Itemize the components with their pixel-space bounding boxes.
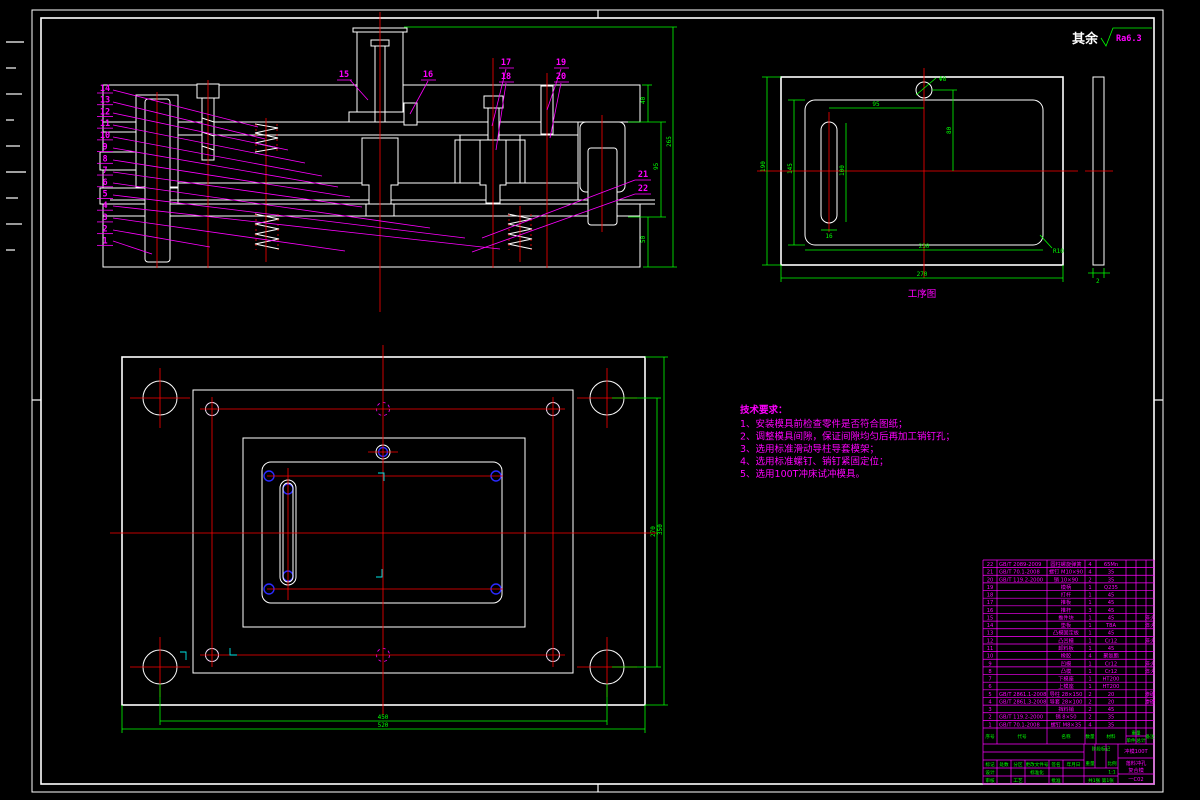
bom-mat: 45 [1108, 615, 1115, 621]
process-view-title: 工序图 [908, 288, 937, 300]
bom-note: 淬火 [1145, 667, 1155, 675]
bom-name: 橡胶 [1061, 652, 1071, 660]
bom-no: 12 [987, 638, 994, 644]
bom-qty: 1 [1088, 600, 1091, 606]
dim-value: 95 [653, 162, 660, 170]
bom-no: 4 [988, 699, 992, 705]
bom-mat: 20 [1108, 692, 1115, 698]
bom-no: 21 [987, 570, 994, 576]
title-block: 标记 处数 分区 更改文件号 签名 年月日 设计 标准化 审核 工艺 批准 阶段… [983, 744, 1154, 784]
bom-mat: Q235 [1104, 585, 1118, 591]
balloon-number: 14 [100, 84, 110, 94]
tb-zone: 分区 [1013, 761, 1023, 768]
bom-name: 圆柱螺旋弹簧 [1050, 560, 1081, 568]
bom-qty: 4 [1088, 654, 1092, 660]
balloon-number: 7 [102, 166, 107, 176]
bom-mat: 35 [1108, 715, 1115, 721]
roughness-prefix: 其余 [1072, 31, 1099, 47]
section-view: 14 13 12 11 10 9 8 7 [97, 12, 677, 312]
bom-no: 14 [987, 623, 994, 629]
guide-post-holes [143, 381, 624, 684]
balloon-number: 20 [556, 72, 566, 82]
table-row: 21 GB/T 70.1-2008 螺钉 M10×90 4 35 [983, 568, 1154, 576]
balloon-number: 10 [100, 131, 110, 141]
dim-value: 520 [378, 722, 389, 729]
bom-mat: 45 [1108, 593, 1115, 599]
dim-value: 230 [919, 243, 930, 250]
table-row: 17 推板 1 45 [983, 598, 1154, 606]
dim-value: 100 [839, 165, 846, 176]
bom-name: 导套 28×100 [1050, 697, 1083, 705]
title-block-names: 冲模100T 落料冲孔 复合模 一C02 [1124, 747, 1148, 783]
screw-head [484, 96, 503, 108]
bom-mat: 聚氨酯 [1103, 652, 1119, 660]
bom-qty: 4 [1088, 562, 1092, 568]
tb-count: 处数 [999, 761, 1009, 768]
bom-mat: 45 [1108, 631, 1115, 637]
table-row: 4 GB/T 2861.3-2008 导套 28×100 2 20 渗碳 [983, 697, 1156, 705]
plan-view: 270 350 450 520 [110, 345, 668, 733]
bom-name: 垫板 [1061, 621, 1072, 629]
tech-req-line: 3、选用标准滑动导柱导套模架； [740, 443, 879, 455]
bom-mat: 35 [1108, 570, 1115, 576]
bom-qty: 2 [1088, 692, 1091, 698]
bom-header-single: 单件 [1126, 737, 1136, 744]
bom-header-no: 序号 [985, 733, 995, 740]
bom-name: 推板 [1061, 598, 1072, 606]
bom-no: 19 [987, 585, 994, 591]
table-row: 5 GB/T 2861.1-2008 导柱 28×150 2 20 渗碳 [983, 690, 1156, 698]
tb-process: 工艺 [1013, 778, 1023, 784]
bom-no: 20 [987, 577, 994, 583]
bom-code: GB/T 119.2-2000 [999, 577, 1043, 583]
bom-no: 17 [987, 600, 994, 606]
table-row: 18 打杆 1 45 [983, 591, 1154, 599]
table-row: 3 挡料销 2 45 [983, 705, 1154, 713]
table-row: 11 卸料板 1 45 [983, 644, 1154, 652]
bom-qty: 2 [1088, 715, 1091, 721]
dim-value: 145 [787, 163, 794, 174]
bom-name: 上模座 [1058, 682, 1074, 690]
tb-drawing-number: 一C02 [1128, 777, 1143, 783]
bom-code: GB/T 2861.3-2008 [999, 699, 1046, 705]
bom-header-mat: 材料 [1106, 733, 1116, 740]
balloon-number: 6 [102, 178, 107, 188]
tb-part-name-line2: 复合模 [1128, 766, 1144, 774]
dim-value: 16 [825, 233, 833, 240]
dim-value: 2 [1096, 278, 1100, 285]
balloon-numbers-left: 14 13 12 11 10 9 8 7 [97, 84, 113, 246]
dim-value: 50 [640, 235, 647, 243]
table-row: 6 上模座 1 HT200 [983, 682, 1154, 690]
bom-mat: 35 [1108, 722, 1115, 728]
bom-qty: 1 [1088, 585, 1091, 591]
tech-req-line: 2、调整模具间隙，保证间隙均匀后再加工销钉孔； [740, 431, 955, 443]
technical-requirements: 技术要求： 1、安装模具前检查零件是否符合图纸； 2、调整模具间隙，保证间隙均匀… [740, 404, 955, 480]
bom-header-wt: 重量 [1131, 730, 1141, 737]
bom-mat: T8A [1105, 623, 1116, 629]
bom-no: 1 [988, 722, 991, 728]
balloon-number: 13 [100, 96, 110, 106]
tb-doc: 更改文件号 [1026, 761, 1049, 768]
balloon-number: 21 [638, 170, 648, 180]
bom-table: 22 GB/T 2089-2009 圆柱螺旋弹簧 4 65Mn 21 GB/T … [983, 560, 1156, 744]
bom-no: 6 [988, 684, 991, 690]
bom-header-qty: 数量 [1085, 733, 1095, 740]
table-row: 10 橡胶 4 聚氨酯 [983, 652, 1154, 660]
tb-scale: 比例 [1107, 760, 1117, 767]
dim-value: 190 [760, 161, 767, 172]
bom-name: 下模座 [1058, 675, 1074, 683]
bom-mat: 45 [1108, 600, 1115, 606]
bom-header-note: 备注 [1145, 733, 1155, 740]
bom-qty: 1 [1088, 669, 1091, 675]
bom-note: 淬火 [1145, 659, 1155, 667]
dim-value: 95 [872, 101, 880, 108]
bom-qty: 2 [1088, 699, 1091, 705]
bom-mat: 20 [1108, 699, 1115, 705]
bom-qty: 1 [1088, 631, 1091, 637]
bom-code: GB/T 2089-2009 [999, 562, 1041, 568]
bom-name: 螺钉 M10×90 [1049, 568, 1083, 576]
bom-no: 16 [987, 608, 994, 614]
balloon-number: 9 [102, 143, 107, 153]
tech-req-lines: 1、安装模具前检查零件是否符合图纸； 2、调整模具间隙，保证间隙均匀后再加工销钉… [740, 418, 955, 480]
table-row: 15 推件块 1 45 淬火 [983, 613, 1155, 621]
tb-mark: 标记 [985, 761, 995, 768]
tb-audit: 审核 [985, 777, 995, 784]
bom-no: 5 [988, 692, 991, 698]
dim-value: 40 [640, 96, 647, 104]
table-row: 9 凹模 1 Cr12 淬火 [983, 659, 1155, 667]
table-row: 22 GB/T 2089-2009 圆柱螺旋弹簧 4 65Mn [983, 560, 1154, 568]
bom-no: 15 [987, 615, 994, 621]
balloon-number: 11 [100, 119, 110, 129]
cad-drawing-canvas: 其余 Ra6.3 [0, 0, 1200, 800]
thickness-view: 2 [1085, 77, 1113, 285]
bom-name: 凸模固定板 [1053, 629, 1080, 637]
table-row: 20 GB/T 119.2-2000 销 10×90 2 35 [983, 575, 1154, 583]
balloon-number: 2 [102, 225, 107, 235]
bom-no: 13 [987, 631, 994, 637]
bom-name: 螺钉 M8×35 [1051, 720, 1082, 728]
bom-qty: 1 [1088, 684, 1091, 690]
balloon-number: 8 [102, 154, 107, 164]
tb-date: 年月日 [1067, 761, 1081, 768]
bom-no: 2 [988, 715, 991, 721]
bom-qty: 1 [1088, 677, 1091, 683]
tb-stdz: 标准化 [1030, 769, 1044, 776]
bom-code: GB/T 70.1-2008 [999, 722, 1040, 728]
bom-qty: 3 [1088, 608, 1091, 614]
bom-mat: 45 [1108, 707, 1115, 713]
roughness-value: Ra6.3 [1116, 34, 1142, 44]
pierce-holes [264, 445, 501, 594]
tb-sig: 签名 [1051, 761, 1060, 768]
plan-dimensions: 270 350 450 520 [122, 357, 668, 733]
tech-req-line: 5、选用100T冲床试冲模具。 [740, 468, 865, 480]
bom-name: 推杆 [1061, 606, 1071, 614]
dim-value: 265 [666, 136, 673, 147]
table-row: 2 GB/T 119.2-2000 销 8×50 2 35 [983, 713, 1154, 721]
dim-value: 80 [946, 126, 953, 134]
bom-mat: 65Mn [1104, 562, 1118, 568]
bom-no: 18 [987, 593, 994, 599]
table-row: 8 凸模 1 Cr12 淬火 [983, 667, 1155, 675]
table-row: 7 下模座 1 HT200 [983, 675, 1154, 683]
tech-req-line: 1、安装模具前检查零件是否符合图纸； [740, 418, 908, 430]
balloon-number: 4 [102, 201, 107, 211]
bom-qty: 2 [1088, 577, 1091, 583]
tb-sheets: 共1张 第1张 [1088, 777, 1114, 784]
bom-mat: 45 [1108, 608, 1115, 614]
bom-qty: 1 [1088, 646, 1091, 652]
bom-name: 打杆 [1061, 591, 1071, 599]
bom-name: 卸料板 [1058, 644, 1074, 652]
bom-mat: 35 [1108, 577, 1115, 583]
balloon-number: 18 [501, 72, 511, 82]
bom-mat: Cr12 [1105, 661, 1117, 667]
bom-qty: 4 [1088, 722, 1092, 728]
bom-name: 导柱 28×150 [1050, 690, 1083, 698]
table-row: 12 凸凹模 1 Cr12 淬火 [983, 636, 1155, 644]
tb-part-name-line1: 落料冲孔 [1126, 759, 1148, 767]
bom-note: 淬火 [1145, 621, 1155, 629]
bom-no: 9 [988, 661, 991, 667]
table-row: 19 模柄 1 Q235 [983, 583, 1154, 591]
bom-code: GB/T 70.1-2008 [999, 570, 1040, 576]
bom-note: 淬火 [1145, 636, 1155, 644]
bom-no: 3 [988, 707, 991, 713]
bom-mat: Cr12 [1105, 669, 1117, 675]
bom-qty: 1 [1088, 661, 1091, 667]
balloon-number: 1 [102, 236, 107, 246]
table-row: 14 垫板 1 T8A 淬火 [983, 621, 1155, 629]
bom-rows: 22 GB/T 2089-2009 圆柱螺旋弹簧 4 65Mn 21 GB/T … [983, 560, 1156, 728]
dim-value: Φ8 [939, 76, 947, 83]
bom-no: 10 [987, 654, 994, 660]
bom-header-code: 代号 [1017, 733, 1027, 740]
bom-qty: 1 [1088, 638, 1091, 644]
bom-note: 渗碳 [1145, 697, 1156, 705]
stop-screw [404, 103, 417, 125]
table-row: 16 推杆 3 45 [983, 606, 1154, 614]
title-block-labels: 标记 处数 分区 更改文件号 签名 年月日 设计 标准化 审核 工艺 批准 阶段… [985, 746, 1117, 784]
fastener-holes [206, 403, 560, 662]
bom-name: 挡料销 [1058, 705, 1074, 713]
plan-centerlines [110, 345, 658, 715]
roughness-note: 其余 Ra6.3 [1072, 28, 1152, 47]
bom-qty: 1 [1088, 593, 1091, 599]
tb-design: 设计 [985, 769, 995, 776]
tech-req-title: 技术要求： [740, 404, 788, 416]
bom-name: 销 8×50 [1055, 713, 1076, 721]
bom-no: 11 [987, 646, 994, 652]
dim-value: 350 [657, 524, 664, 535]
bom-code: GB/T 2861.1-2008 [999, 692, 1046, 698]
bom-mat: Cr12 [1105, 638, 1117, 644]
balloon-number: 3 [102, 213, 107, 223]
dim-value: 270 [650, 526, 657, 537]
table-row: 13 凸模固定板 1 45 [983, 629, 1154, 637]
bom-header: 序号 代号 名称 数量 材料 重量 单件 总计 备注 [985, 730, 1155, 745]
tb-stage: 阶段标记 [1092, 746, 1111, 753]
section-dimensions: 40 95 50 265 [404, 27, 677, 267]
bom-no: 22 [987, 562, 994, 568]
bom-code: GB/T 119.2-2000 [999, 715, 1043, 721]
balloon-number: 19 [556, 58, 566, 68]
bom-name: 模柄 [1061, 583, 1071, 591]
tb-tooling-name: 冲模100T [1124, 747, 1148, 755]
section-cut-marks [180, 473, 384, 660]
bom-mat: HT200 [1103, 677, 1120, 683]
bom-qty: 2 [1088, 707, 1091, 713]
bom-name: 推件块 [1058, 613, 1074, 621]
tb-weight: 重量 [1085, 760, 1095, 767]
bom-no: 8 [988, 669, 991, 675]
balloon-number: 5 [102, 189, 107, 199]
bom-name: 凸凹模 [1058, 636, 1074, 644]
bom-name: 凸模 [1061, 667, 1071, 675]
tb-approve: 批准 [1051, 777, 1061, 784]
bom-note: 渗碳 [1145, 690, 1156, 698]
balloon-number: 15 [339, 70, 349, 80]
balloon-number: 17 [501, 58, 511, 68]
bom-name: 销 10×90 [1054, 575, 1078, 583]
dim-value: 450 [378, 714, 389, 721]
balloon-number: 16 [423, 70, 433, 80]
tech-req-line: 4、选用标准螺钉、销钉紧固定位； [740, 456, 889, 468]
bom-qty: 1 [1088, 615, 1091, 621]
bom-name: 凹模 [1061, 659, 1071, 667]
bom-note: 淬火 [1145, 613, 1155, 621]
dim-value: 270 [917, 271, 928, 278]
balloon-number: 22 [638, 184, 648, 194]
process-view: 190 145 95 100 16 Φ8 80 R10 230 270 工序图 [757, 68, 1078, 300]
table-row: 1 GB/T 70.1-2008 螺钉 M8×35 4 35 [983, 720, 1154, 728]
bom-qty: 4 [1088, 570, 1092, 576]
guide-pillar-right [580, 122, 625, 225]
bom-qty: 1 [1088, 623, 1091, 629]
balloon-number: 12 [100, 107, 110, 117]
bom-header-name: 名称 [1061, 733, 1071, 740]
bom-no: 7 [988, 677, 991, 683]
dim-value: R10 [1053, 248, 1064, 255]
tb-scale-value: 1:1 [1108, 770, 1115, 776]
bom-mat: HT200 [1103, 684, 1120, 690]
bom-mat: 45 [1108, 646, 1115, 652]
